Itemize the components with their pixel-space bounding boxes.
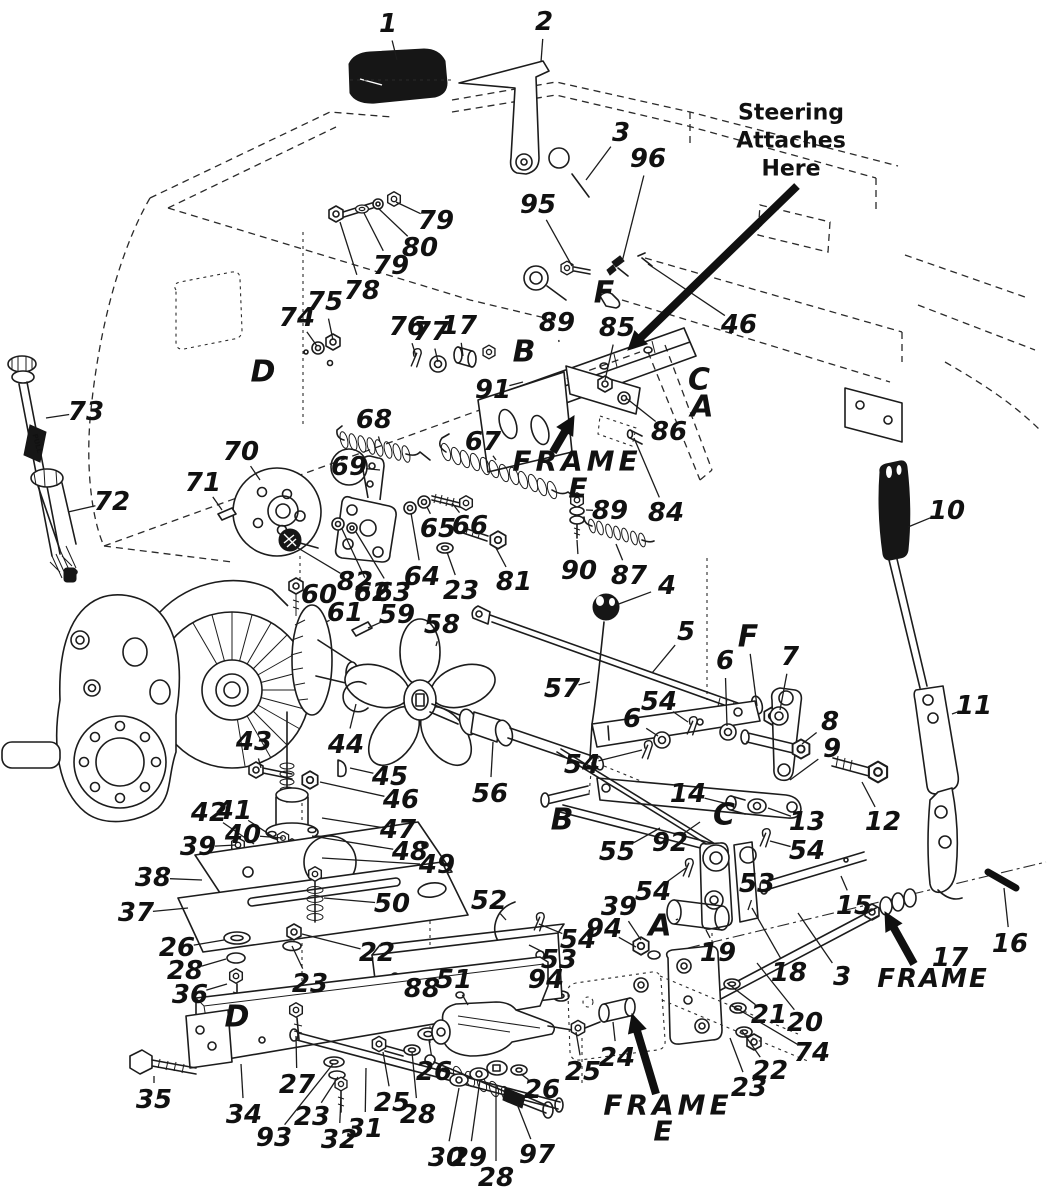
part-81-leader [496, 548, 506, 567]
part-78-leader [340, 222, 357, 275]
washer-30 [450, 1074, 468, 1086]
part-97-leader [517, 1104, 531, 1139]
frame-right-text: FRAME [877, 964, 989, 994]
part-label-23: 23 [292, 969, 328, 999]
part-label-35: 35 [136, 1085, 172, 1115]
part-79-leader [364, 213, 383, 251]
part-45-leader [350, 768, 373, 773]
part-label-52: 52 [471, 886, 507, 916]
part-label-51: 51 [436, 965, 472, 995]
bar-55 [560, 805, 719, 852]
part-2-leader [541, 39, 543, 62]
washer-65 [418, 496, 430, 508]
ref-letter-F: F [738, 620, 759, 655]
part-label-28: 28 [478, 1163, 514, 1193]
part-label-15: 15 [836, 891, 872, 921]
part-label-84: 84 [648, 498, 684, 528]
washer-23b [736, 1027, 752, 1037]
ref-letter-B: B [551, 803, 574, 838]
part-73-leader [46, 415, 69, 418]
part-39-leader [628, 921, 641, 940]
part-label-8: 8 [821, 707, 839, 737]
bolt-35 [130, 1050, 196, 1074]
circled-label-69: 69 [331, 452, 367, 482]
part-label-65: 65 [420, 514, 456, 544]
ref-letter-F: F [594, 276, 615, 311]
nut-28 [227, 953, 245, 963]
part-label-6: 6 [716, 646, 734, 676]
part-label-89: 89 [592, 496, 628, 526]
screw-66 [432, 494, 472, 510]
part-label-94: 94 [586, 914, 622, 944]
ref-letter-A: A [688, 390, 713, 425]
part-64-leader [411, 513, 419, 560]
washer-86 [618, 392, 630, 404]
part-54-leader [598, 750, 642, 761]
cotter-54d [760, 829, 770, 847]
washer-29 [470, 1068, 488, 1080]
part-8-leader [802, 733, 817, 744]
part-label-88: 88 [404, 974, 440, 1004]
steering-note-text: Attaches [736, 129, 846, 154]
parts-diagram-canvas: 1239695798079787574767717898546918673686… [0, 0, 1049, 1200]
washer-26 [224, 932, 250, 944]
plug-45 [338, 760, 346, 776]
part-label-86: 86 [651, 417, 687, 447]
frame-e-lower-text: E [653, 1115, 676, 1148]
washer-93 [324, 1057, 344, 1067]
part-23-leader [730, 1038, 743, 1072]
part-label-57: 57 [544, 674, 581, 704]
trunnion-7 [770, 707, 788, 725]
part-label-21: 21 [751, 1000, 787, 1030]
variator-disc-70 [233, 468, 321, 556]
part-label-54: 54 [564, 750, 600, 780]
part-28-leader [201, 959, 226, 966]
cotter-pin-76 [411, 349, 421, 367]
part-54-leader [770, 841, 791, 847]
part-72-leader [68, 506, 95, 512]
part-label-24: 24 [599, 1043, 635, 1073]
part-label-68: 68 [356, 405, 392, 435]
part-label-50: 50 [374, 889, 410, 919]
part-label-81: 81 [496, 567, 532, 597]
washer-74 [312, 342, 324, 354]
part-label-37: 37 [118, 898, 155, 928]
part-30-leader [449, 1088, 459, 1141]
part-label-12: 12 [865, 807, 901, 837]
roll-pin-16 [988, 872, 1016, 888]
part-10-leader [908, 517, 931, 527]
part-label-55: 55 [599, 837, 635, 867]
frame-e-lower-arrow-shaft [637, 1031, 656, 1094]
part-15-leader [841, 876, 847, 890]
part-label-94: 94 [528, 965, 564, 995]
part-3-leader [586, 147, 611, 180]
part-label-16: 16 [992, 929, 1028, 959]
part-label-7: 7 [781, 642, 800, 672]
part-4-leader [616, 592, 651, 605]
part-82-leader [298, 548, 340, 573]
part-label-34: 34 [226, 1100, 262, 1130]
part-87-leader [616, 544, 623, 560]
washer-79 [356, 205, 369, 213]
part-95-leader [546, 220, 572, 266]
part-22-leader [302, 934, 361, 949]
part-label-6: 6 [623, 704, 641, 734]
part-44-leader [350, 704, 356, 728]
part-label-25: 25 [565, 1057, 601, 1087]
part-label-36: 36 [172, 980, 208, 1010]
part-label-9: 9 [823, 734, 841, 764]
link-53 [772, 688, 802, 780]
part-32-leader [340, 1097, 341, 1123]
part-27-leader [296, 1036, 297, 1068]
part-label-53: 53 [739, 869, 775, 899]
part-label-72: 72 [94, 487, 130, 517]
part-label-71: 71 [185, 468, 221, 498]
steering-note-text: Here [761, 157, 820, 182]
lever-arm-11 [914, 686, 958, 794]
part-label-96: 96 [630, 144, 666, 174]
frame-e-upper-text: E [568, 472, 591, 505]
part-96-leader [622, 175, 644, 262]
part-label-73: 73 [68, 397, 104, 427]
ref-letter-D: D [225, 1000, 250, 1035]
part-label-79: 79 [418, 206, 454, 236]
part-label-46: 46 [720, 310, 757, 340]
part-label-3: 3 [612, 118, 630, 148]
nut-22 [287, 924, 301, 940]
ref-letter-B: B [513, 335, 536, 370]
bolt-43 [249, 762, 263, 778]
part-label-26: 26 [416, 1057, 452, 1087]
part-57-leader [578, 682, 590, 685]
pedal-arm-2 [459, 61, 549, 174]
spacer-17 [454, 347, 476, 367]
part-24-leader [613, 1022, 615, 1041]
washer-23 [437, 543, 453, 553]
part-label-54: 54 [789, 836, 825, 866]
part-label-70: 70 [223, 437, 259, 467]
part-label-44: 44 [327, 730, 364, 760]
part-label-56: 56 [472, 779, 508, 809]
part-label-27: 27 [279, 1070, 316, 1100]
nut-75 [326, 334, 340, 350]
part-label-91: 91 [475, 375, 511, 405]
ref-letter-A: A [646, 909, 671, 944]
clip-96 [607, 256, 628, 276]
part-label-49: 49 [418, 850, 455, 880]
part-label-13: 13 [789, 807, 825, 837]
washer-13 [748, 799, 766, 813]
part-label-2: 2 [535, 7, 553, 37]
part-23-leader [321, 1077, 338, 1103]
washer-94 [648, 951, 660, 959]
part-label-97: 97 [519, 1140, 556, 1170]
part-label-95: 95 [520, 190, 556, 220]
part-68-leader [378, 436, 380, 442]
part-label-87: 87 [611, 561, 648, 591]
part-label-26: 26 [524, 1075, 560, 1105]
pedal-assembly [349, 49, 589, 197]
part-label-54: 54 [641, 687, 677, 717]
part-label-19: 19 [700, 938, 736, 968]
spacer-47 [266, 788, 318, 841]
part-19-leader [706, 930, 710, 938]
washer-28c [487, 1061, 507, 1075]
part-label-10: 10 [929, 496, 965, 526]
part-label-67: 67 [465, 427, 502, 457]
part-label-54: 54 [635, 877, 671, 907]
nut-46 [302, 771, 317, 789]
part-18-leader [752, 908, 781, 958]
part-label-23: 23 [443, 576, 479, 606]
part-label-89: 89 [539, 308, 575, 338]
part-74-leader [307, 332, 317, 346]
grip-10 [879, 461, 910, 560]
ref-A-leader [676, 919, 678, 920]
part-label-74: 74 [279, 303, 315, 333]
part-label-85: 85 [599, 313, 635, 343]
part-38-leader [170, 879, 202, 880]
part-label-38: 38 [135, 863, 171, 893]
washer-74b [730, 1003, 746, 1013]
part-label-11: 11 [956, 691, 992, 721]
part-label-46: 46 [382, 785, 419, 815]
part-16-leader [1004, 888, 1008, 927]
part-label-78: 78 [344, 276, 380, 306]
part-label-39: 39 [180, 832, 216, 862]
part-29-leader [471, 1080, 480, 1141]
cam-plate-51 [432, 1002, 572, 1056]
washer-26c [511, 1065, 527, 1075]
part-label-66: 66 [452, 511, 488, 541]
washer-64 [404, 502, 416, 514]
part-65-leader [427, 507, 430, 514]
steering-note-text: Steering [738, 101, 844, 126]
part-label-4: 4 [657, 571, 676, 601]
part-label-14: 14 [670, 779, 706, 809]
part-56-leader [491, 742, 493, 777]
part-34-leader [241, 1064, 243, 1098]
part-label-92: 92 [652, 828, 688, 858]
ref-letter-C: C [713, 798, 735, 833]
axle-stub [2, 742, 60, 768]
part-label-22: 22 [359, 938, 395, 968]
part-47-leader [322, 818, 381, 827]
dipstick-73 [8, 356, 66, 578]
part-label-59: 59 [379, 600, 415, 630]
nut-79 [388, 192, 401, 206]
steering-note-arrow-shaft [641, 186, 797, 337]
ref-letter-D: D [251, 355, 276, 390]
pedal-pad-1 [349, 49, 447, 103]
frame-right-arrow-shaft [894, 928, 914, 964]
washer-77 [430, 356, 446, 372]
part-12-leader [862, 782, 875, 807]
part-label-17: 17 [441, 311, 478, 341]
cotter-54b [642, 741, 652, 759]
part-label-20: 20 [787, 1008, 823, 1038]
part-label-5: 5 [677, 617, 695, 647]
part-label-18: 18 [771, 958, 807, 988]
part-label-58: 58 [424, 610, 460, 640]
spacer-24 [599, 998, 635, 1022]
frame-e-lower-arrow-head [629, 1014, 646, 1034]
cotter-54e [534, 913, 544, 931]
part-label-43: 43 [235, 727, 272, 757]
parts-diagram-page: 1239695798079787574767717898546918673686… [0, 0, 1049, 1200]
part-23-leader [447, 552, 455, 575]
part-label-74: 74 [794, 1038, 830, 1068]
cotter-54c [683, 859, 693, 877]
bolt-head-78 [329, 206, 343, 222]
part-label-23: 23 [731, 1073, 767, 1103]
pin-3 [572, 174, 589, 197]
part-36-leader [206, 984, 227, 990]
part-5-leader [652, 645, 675, 673]
part-label-61: 61 [327, 598, 363, 628]
part-label-90: 90 [561, 556, 597, 586]
part-31-leader [365, 1068, 366, 1112]
washer-6 [720, 724, 736, 740]
part-90-leader [577, 540, 578, 554]
part-label-1: 1 [379, 9, 397, 39]
part-label-3: 3 [833, 962, 851, 992]
